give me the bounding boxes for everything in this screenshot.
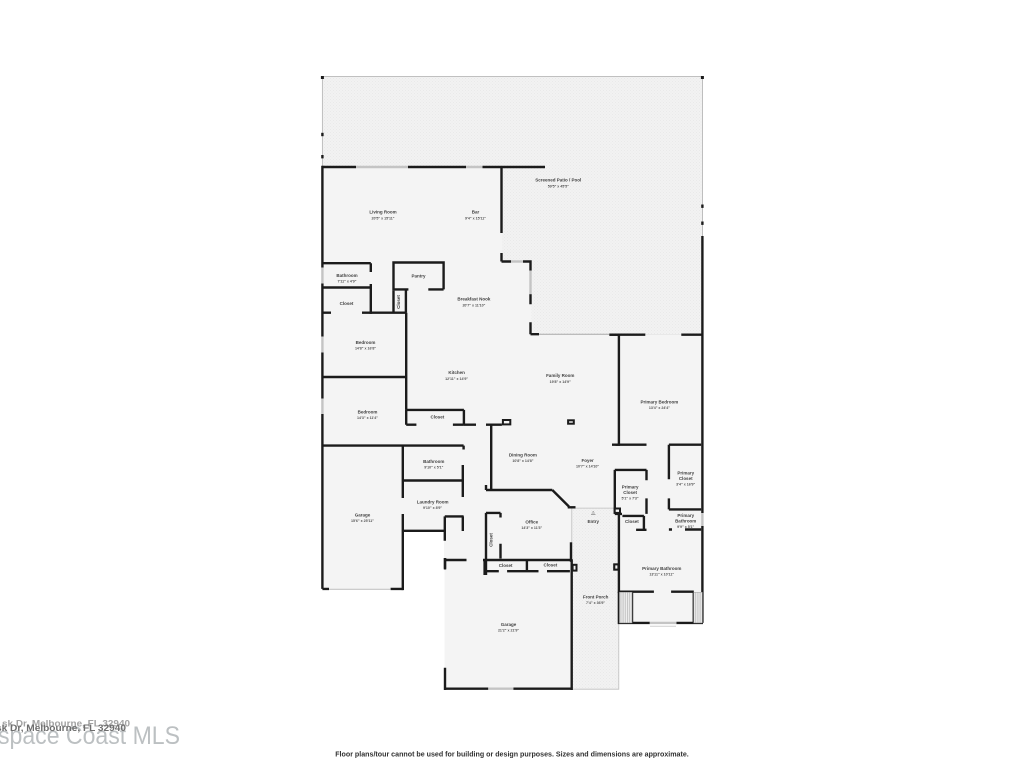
svg-text:Living Room: Living Room [369,210,396,215]
svg-text:Office: Office [525,520,538,525]
svg-text:Bar: Bar [472,210,480,215]
svg-text:10'8" x 14'8": 10'8" x 14'8" [512,459,533,463]
svg-text:Screened Patio / Pool: Screened Patio / Pool [535,178,581,183]
svg-text:7'11" x 4'9": 7'11" x 4'9" [338,280,357,284]
svg-text:13'4" x 24'4": 13'4" x 24'4" [649,406,670,410]
svg-text:Closet: Closet [396,295,401,309]
svg-text:5'1" x 7'3": 5'1" x 7'3" [622,497,639,501]
svg-text:9'10" x 8'9": 9'10" x 8'9" [423,506,442,510]
svg-text:9'10" x 5'1": 9'10" x 5'1" [424,466,443,470]
svg-text:Bedroom: Bedroom [356,340,376,345]
svg-text:21'2" x 21'9": 21'2" x 21'9" [498,629,519,633]
svg-text:Garage: Garage [501,622,517,627]
svg-text:13'11" x 10'11": 13'11" x 10'11" [649,573,674,577]
svg-text:Kitchen: Kitchen [448,370,465,375]
svg-text:Front Porch: Front Porch [583,595,609,600]
svg-text:14'3" x 11'3": 14'3" x 11'3" [521,526,542,530]
svg-text:7'4" x 36'9": 7'4" x 36'9" [586,601,605,605]
svg-text:Entry: Entry [588,519,600,524]
svg-text:12'11" x 14'9": 12'11" x 14'9" [445,377,468,381]
svg-text:Primary: Primary [677,513,694,518]
svg-text:Closet: Closet [489,533,494,547]
svg-text:Primary: Primary [622,485,639,490]
svg-text:20'5" x 15'11": 20'5" x 15'11" [372,217,395,221]
svg-text:Closet: Closet [544,563,558,568]
svg-text:19'8" x 14'9": 19'8" x 14'9" [550,380,571,384]
svg-text:Bathroom: Bathroom [675,519,696,524]
svg-text:Closet: Closet [431,415,445,420]
svg-text:Family Room: Family Room [546,373,574,378]
svg-text:Laundry Room: Laundry Room [417,500,449,505]
svg-text:15'6" x 25'11": 15'6" x 25'11" [351,519,374,523]
svg-text:Bedroom: Bedroom [358,410,378,415]
svg-text:Bathroom: Bathroom [423,459,444,464]
svg-text:Breakfast Nook: Breakfast Nook [457,297,491,302]
svg-text:Floor plans/tour cannot be use: Floor plans/tour cannot be used for buil… [335,751,689,759]
svg-text:10'7" x 14'10": 10'7" x 14'10" [576,465,599,469]
svg-text:9'9" x 5'1": 9'9" x 5'1" [677,525,694,529]
svg-text:14'3" x 11'4": 14'3" x 11'4" [357,416,378,420]
svg-text:Dining Room: Dining Room [509,453,537,458]
svg-text:Closet: Closet [623,490,637,495]
svg-text:Pantry: Pantry [411,274,426,279]
svg-text:Primary Bathroom: Primary Bathroom [642,566,681,571]
svg-text:Closet: Closet [679,476,693,481]
svg-text:14'8" x 16'8": 14'8" x 16'8" [355,347,376,351]
svg-text:Garage: Garage [355,513,371,518]
svg-text:Closet: Closet [499,563,513,568]
svg-text:59'5" x 45'5": 59'5" x 45'5" [548,185,569,189]
svg-text:20'7" x 11'10": 20'7" x 11'10" [462,304,485,308]
svg-text:Primary Bedroom: Primary Bedroom [641,400,679,405]
svg-text:9'4" x 15'11": 9'4" x 15'11" [465,217,486,221]
svg-text:Primary: Primary [677,471,694,476]
svg-text:Closet: Closet [340,301,354,306]
svg-text:Bathroom: Bathroom [336,273,357,278]
svg-text:3'4" x 16'9": 3'4" x 16'9" [676,483,695,487]
svg-text:sk Dr, Melbourne, FL 32940: sk Dr, Melbourne, FL 32940 [0,723,126,733]
svg-text:Foyer: Foyer [581,458,594,463]
svg-text:Closet: Closet [625,519,639,524]
